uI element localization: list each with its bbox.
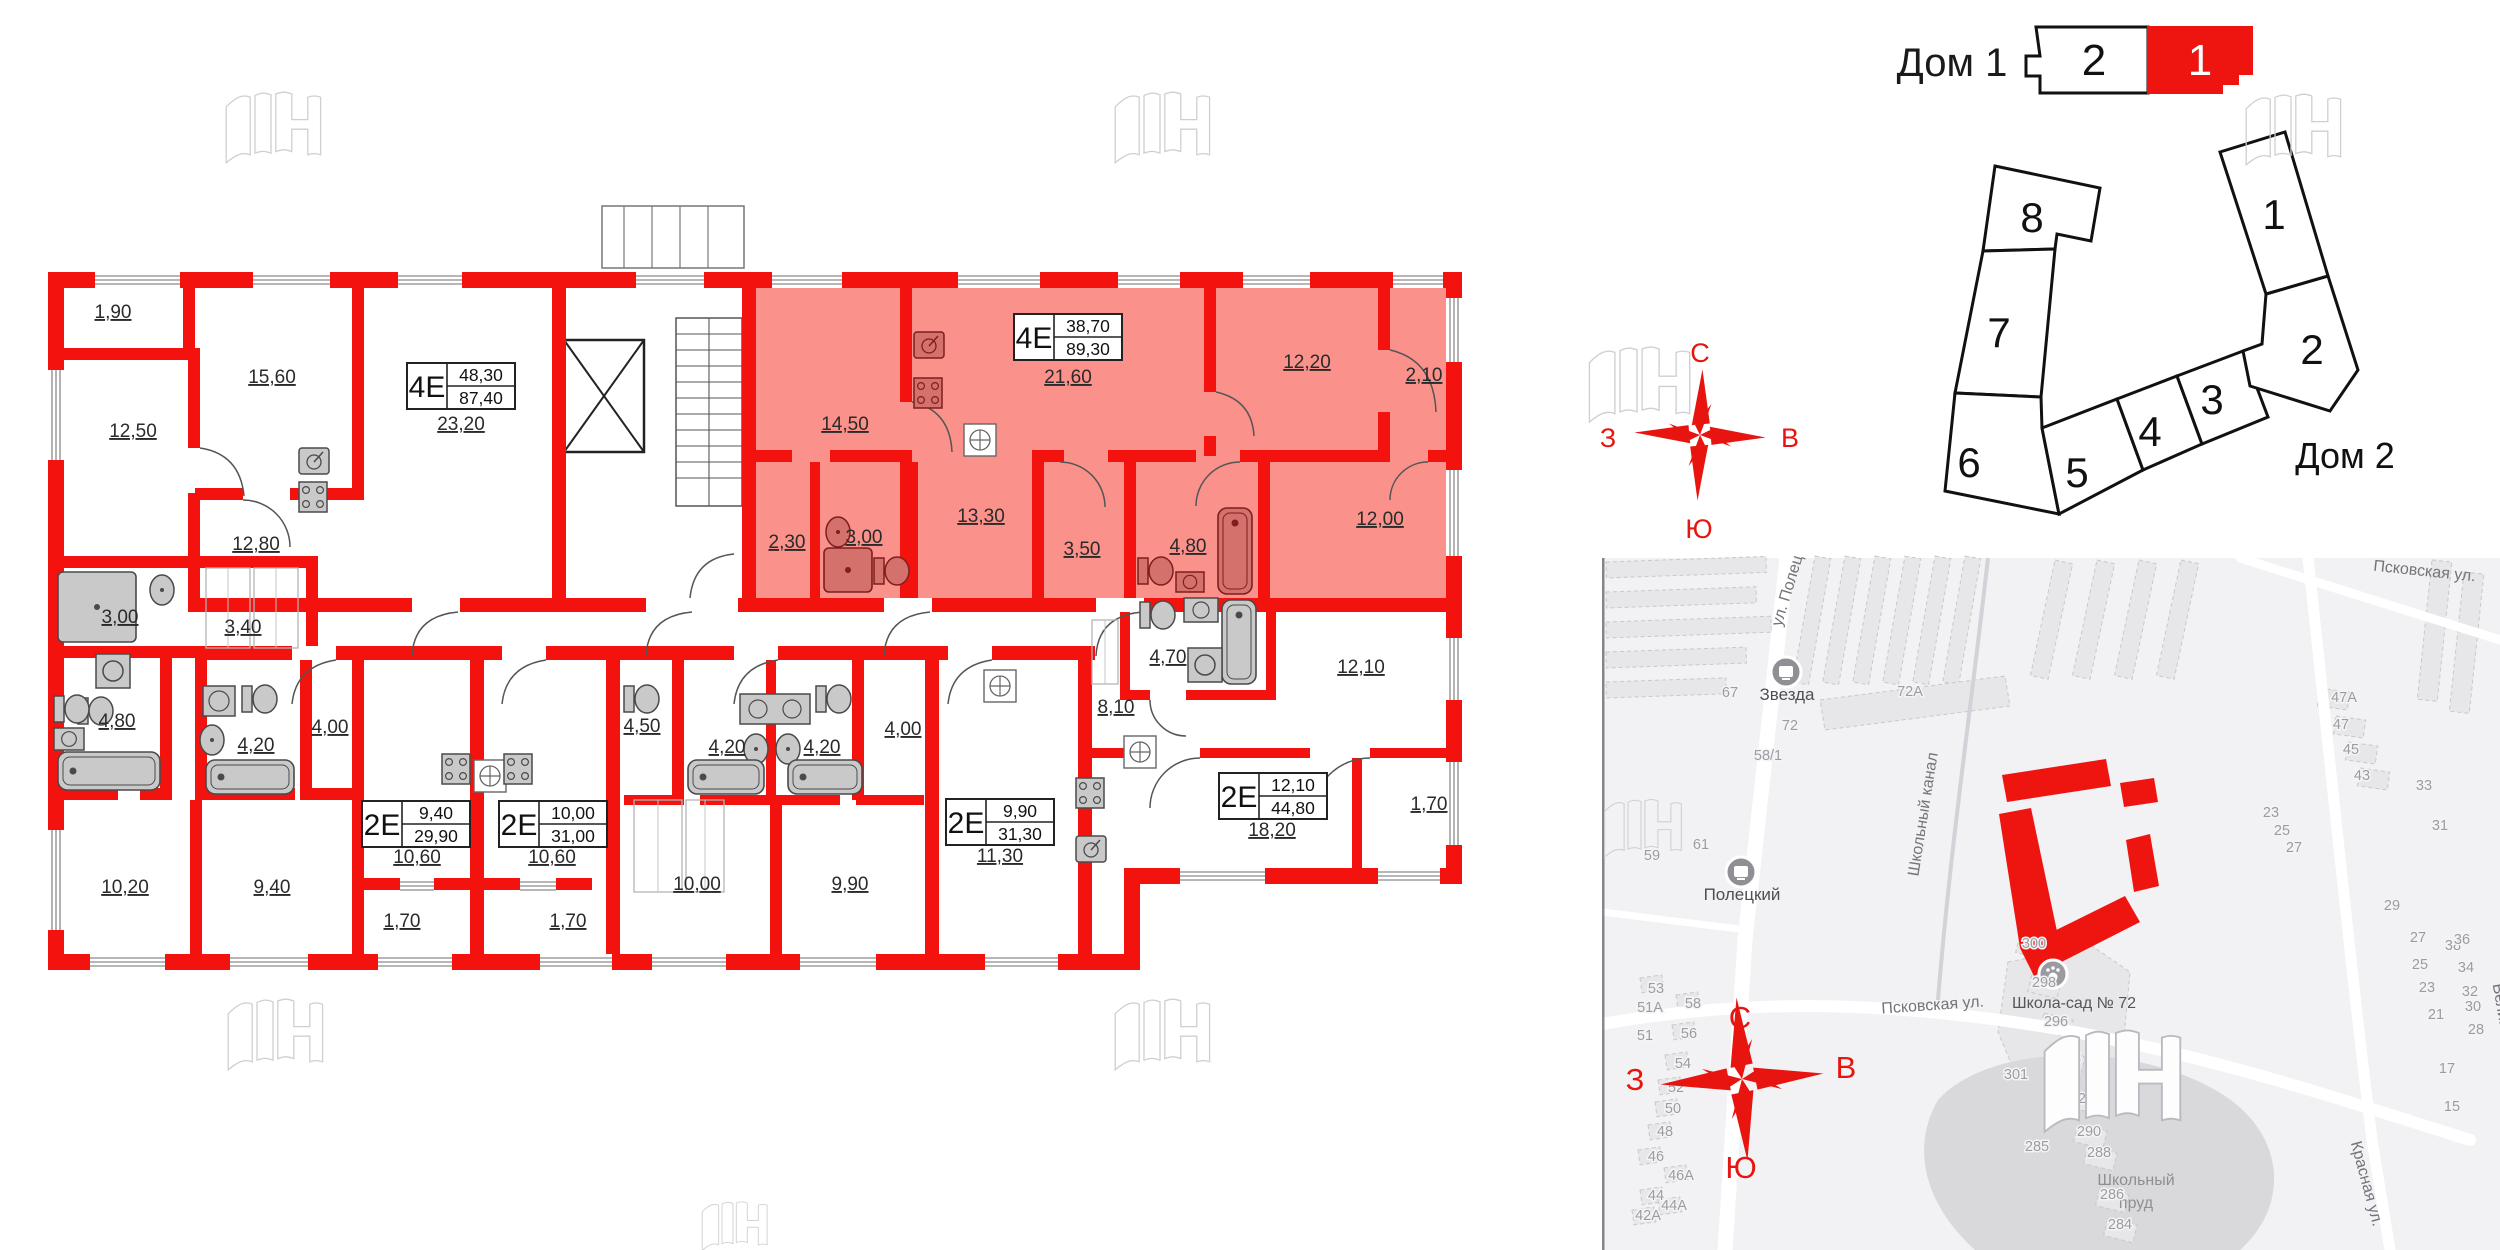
room-area-label: 4,80 — [1170, 536, 1207, 557]
bathtub-drain — [1232, 520, 1239, 527]
transit-stop-label: Звезда — [1760, 685, 1816, 704]
school-icon-glyph — [2051, 966, 2055, 970]
tab-1-label[interactable]: 1 — [2188, 36, 2212, 85]
stove — [504, 754, 532, 784]
apartment-info-box[interactable]: 2Е10,0031,00 — [499, 801, 607, 847]
apartment-total-area: 29,90 — [414, 826, 458, 846]
toilet-bowl — [1151, 601, 1175, 629]
wall — [364, 878, 400, 890]
house-number: 61 — [1693, 837, 1709, 853]
bathtub-drain — [218, 774, 225, 781]
house-number: 53 — [1648, 981, 1664, 997]
wall — [300, 660, 312, 800]
house-number: 290 — [2077, 1124, 2101, 1140]
school-icon-glyph — [2056, 968, 2060, 972]
room-area-label: 18,20 — [1248, 820, 1296, 841]
apartment-total-area: 44,80 — [1271, 798, 1315, 818]
wall — [48, 556, 196, 568]
room-area-label: 3,00 — [102, 607, 139, 628]
room-area-label: 1,70 — [384, 911, 421, 932]
house-number: 31 — [2432, 818, 2448, 834]
wall — [908, 462, 918, 598]
wall — [1120, 610, 1130, 698]
highlighted-building-shape — [2120, 778, 2158, 807]
apartment-total-area: 87,40 — [459, 388, 503, 408]
room-area-label: 13,30 — [957, 506, 1005, 527]
washing-machine — [96, 654, 130, 688]
compass-east: В — [1836, 1050, 1857, 1085]
apartment-info-box[interactable]: 2Е9,4029,90 — [362, 801, 470, 847]
scheme-num-7: 7 — [1987, 309, 2010, 356]
compass-east: В — [1781, 423, 1799, 453]
wall — [434, 878, 470, 890]
wall — [1204, 272, 1216, 392]
bathtub-drain — [800, 774, 807, 781]
scheme-num-4: 4 — [2138, 408, 2161, 455]
house-number: 29 — [2384, 898, 2400, 914]
apartment-living-area: 9,90 — [1003, 801, 1037, 821]
double-sink — [740, 694, 810, 724]
wall — [188, 493, 200, 612]
house-number: 27 — [2286, 840, 2302, 856]
wall — [1428, 450, 1448, 462]
room-area-label: 12,20 — [1283, 352, 1331, 373]
wall — [1044, 450, 1064, 462]
wall — [925, 652, 939, 970]
house-number: 28 — [2468, 1022, 2484, 1038]
room-area-label: 10,60 — [393, 847, 441, 868]
room-area-label: 10,60 — [528, 847, 576, 868]
wall — [1186, 690, 1276, 700]
house-number: 46А — [1668, 1168, 1694, 1184]
wall — [195, 598, 1462, 612]
room-area-label: 12,80 — [232, 534, 280, 555]
room-area-label: 4,70 — [1150, 647, 1187, 668]
apartment-living-area: 12,10 — [1271, 775, 1315, 795]
wall — [1352, 758, 1362, 868]
wall — [672, 660, 684, 800]
house-number: 51А — [1637, 1000, 1663, 1016]
wall — [188, 348, 200, 448]
stove — [299, 482, 327, 512]
house-number: 36 — [2454, 932, 2470, 948]
house-number: 33 — [2416, 778, 2432, 794]
stove — [442, 754, 470, 784]
scheme-num-2: 2 — [2300, 326, 2323, 373]
toilet-tank — [1138, 558, 1148, 584]
room-area-label: 8,10 — [1098, 697, 1135, 718]
apartment-type: 2Е — [948, 807, 985, 840]
apartment-type: 2Е — [1221, 781, 1258, 814]
bathtub-drain — [1236, 612, 1243, 619]
room-area-label: 4,20 — [238, 735, 275, 756]
apartment-info-box[interactable]: 4Е48,3087,40 — [407, 363, 515, 409]
toilet-bowl — [1149, 557, 1173, 585]
room-area-label: 3,00 — [846, 527, 883, 548]
wall — [900, 280, 912, 402]
house-number: 47 — [2333, 717, 2349, 733]
bathtub-drain — [70, 768, 77, 775]
wall — [195, 488, 243, 500]
house-number: 50 — [1665, 1101, 1681, 1117]
house-number: 51 — [1637, 1028, 1653, 1044]
room-area-label: 4,20 — [804, 737, 841, 758]
house-number: 56 — [1681, 1026, 1697, 1042]
house-number: 72А — [1897, 684, 1923, 700]
house-number: 288 — [2087, 1145, 2111, 1161]
toilet-tank — [242, 686, 252, 712]
stove — [1076, 778, 1104, 808]
room-area-label: 9,90 — [832, 874, 869, 895]
door-opening — [690, 598, 738, 612]
wall — [830, 450, 912, 462]
sink-drain — [210, 738, 214, 742]
door-opening — [884, 598, 932, 612]
house-number: 296 — [2044, 1014, 2068, 1030]
room-area-label: 2,30 — [769, 532, 806, 553]
room-area-label: 1,90 — [95, 302, 132, 323]
apartment-living-area: 10,00 — [551, 803, 595, 823]
house-number: 23 — [2263, 805, 2279, 821]
map-label: Школа-сад № 72 — [2012, 995, 2136, 1012]
toilet-bowl — [253, 685, 277, 713]
compass-west: З — [1626, 1062, 1645, 1097]
compass-south: Ю — [1685, 514, 1712, 544]
room-area-label: 9,40 — [254, 877, 291, 898]
apartment-living-area: 9,40 — [419, 803, 453, 823]
house-number: 46 — [1648, 1149, 1664, 1165]
wall — [1378, 272, 1390, 350]
wall — [856, 795, 924, 805]
apartment-type: 4Е — [1016, 322, 1053, 355]
house-number: 42А — [1635, 1208, 1661, 1224]
house-number: 47А — [2331, 690, 2357, 706]
room-area-label: 23,20 — [437, 414, 485, 435]
apartment-total-area: 31,30 — [998, 824, 1042, 844]
wall — [766, 652, 776, 800]
wall — [742, 272, 756, 612]
room-area-label: 10,00 — [673, 874, 721, 895]
room-area-label: 11,30 — [977, 846, 1023, 867]
scheme-num-5: 5 — [2065, 449, 2088, 496]
apartment-type: 2Е — [501, 809, 538, 842]
scheme-num-1: 1 — [2262, 191, 2285, 238]
compass-south: Ю — [1725, 1150, 1756, 1185]
apartment-info-box[interactable]: 2Е9,9031,30 — [946, 799, 1054, 845]
room-area-label: 4,00 — [885, 719, 922, 740]
room-area-label: 12,00 — [1356, 509, 1404, 530]
house-number: 34 — [2458, 960, 2474, 976]
wall — [1032, 450, 1044, 598]
house-number: 300 — [2022, 936, 2046, 952]
room-area-label: 14,50 — [821, 414, 869, 435]
wall — [810, 462, 820, 598]
room-area-label: 12,10 — [1337, 657, 1385, 678]
wall — [606, 652, 620, 970]
apartment-type: 4Е — [409, 371, 446, 404]
house-number: 48 — [1657, 1124, 1673, 1140]
room-area-label: 21,60 — [1044, 367, 1092, 388]
room-area-label: 4,20 — [709, 737, 746, 758]
scheme-num-6: 6 — [1957, 439, 1980, 486]
room-area-label: 3,50 — [1064, 539, 1101, 560]
transit-stop-label: Полецкий — [1704, 885, 1781, 904]
wall — [1124, 868, 1140, 968]
house-number: 23 — [2419, 980, 2435, 996]
room-area-label: 3,40 — [225, 617, 262, 638]
apartment-info-box[interactable]: 4Е38,7089,30 — [1014, 314, 1122, 360]
room-area-label: 15,60 — [248, 367, 296, 388]
toilet-bowl — [885, 557, 909, 585]
bus-glyph — [1734, 866, 1748, 877]
room-area-label: 1,70 — [1411, 794, 1448, 815]
toilet-tank — [1140, 602, 1150, 628]
house-number: 58 — [1685, 996, 1701, 1012]
toilet-tank — [624, 686, 634, 712]
door-opening — [948, 646, 992, 660]
compass-west: З — [1600, 423, 1616, 453]
wall — [1258, 450, 1270, 598]
house-number: 59 — [1644, 848, 1660, 864]
compass-north: С — [1690, 338, 1710, 368]
wall — [306, 556, 318, 648]
sink-drain — [160, 588, 164, 592]
house-number: 43 — [2354, 768, 2370, 784]
house-number: 21 — [2428, 1007, 2444, 1023]
apartment-total-area: 89,30 — [1066, 339, 1110, 359]
wall — [1136, 450, 1196, 462]
sink-drain — [836, 530, 840, 534]
entrance-steps — [602, 206, 744, 268]
map-label: пруд — [2119, 1195, 2154, 1212]
house-number: 284 — [2108, 1217, 2132, 1233]
apartment-info-box[interactable]: 2Е12,1044,80 — [1219, 773, 1327, 819]
house-number: 58/1 — [1754, 748, 1782, 764]
house-number: 285 — [2025, 1139, 2049, 1155]
room-area-label: 4,00 — [312, 717, 349, 738]
house-number: 67 — [1722, 685, 1738, 701]
compass-north: С — [1729, 1000, 1751, 1035]
sink-drain — [754, 747, 758, 751]
toilet-bowl — [827, 685, 851, 713]
wall — [352, 272, 364, 500]
toilet-bowl — [635, 685, 659, 713]
house-title: Дом 1 — [1897, 41, 2008, 85]
house-number: 15 — [2444, 1099, 2460, 1115]
house-number: 27 — [2410, 930, 2426, 946]
wall — [1370, 748, 1462, 758]
floor-plan-page: ЗвездаПолецкий ул. ПолецШкольный каналПс… — [0, 0, 2500, 1250]
room-area-label: 1,70 — [550, 911, 587, 932]
wall — [1124, 450, 1136, 598]
bathtub-drain — [700, 774, 707, 781]
school-icon-glyph — [2046, 968, 2050, 972]
wall — [1200, 748, 1310, 758]
wall — [1266, 610, 1276, 698]
house-number: 301 — [2004, 1067, 2028, 1083]
door-opening — [502, 646, 546, 660]
room-area-label: 10,20 — [101, 877, 149, 898]
wall — [470, 652, 484, 970]
shower-drain — [845, 567, 851, 573]
toilet-tank — [54, 696, 64, 722]
apartment-living-area: 38,70 — [1066, 316, 1110, 336]
wall — [310, 788, 364, 800]
wall — [552, 272, 566, 612]
house-number: 298 — [2032, 975, 2056, 991]
stove — [914, 378, 942, 408]
wall — [1378, 412, 1390, 456]
wall — [195, 556, 318, 568]
house-number: 30 — [2465, 999, 2481, 1015]
wall — [190, 800, 202, 954]
wall — [1270, 450, 1390, 462]
bus-glyph — [1779, 666, 1793, 677]
room-area-label: 4,50 — [624, 716, 661, 737]
washing-machine — [1188, 648, 1222, 682]
door-opening — [734, 646, 778, 660]
wall — [754, 450, 792, 462]
house-number: 32 — [2462, 984, 2478, 1000]
door-opening — [1096, 598, 1144, 612]
room-area-label: 4,80 — [99, 711, 136, 732]
door-opening — [412, 598, 460, 612]
wall — [160, 658, 172, 800]
apartment-living-area: 48,30 — [459, 365, 503, 385]
tab-2-label[interactable]: 2 — [2082, 36, 2106, 85]
door-opening — [646, 598, 694, 612]
room-area-label: 2,10 — [1406, 365, 1443, 386]
wall — [183, 272, 195, 360]
apartment-type: 2Е — [364, 809, 401, 842]
house-number: 45 — [2343, 742, 2359, 758]
toilet-tank — [816, 686, 826, 712]
scheme-num-3: 3 — [2200, 376, 2223, 423]
wall — [1204, 436, 1216, 456]
house-number: 72 — [1782, 718, 1798, 734]
house-number: 25 — [2412, 957, 2428, 973]
scheme-num-8: 8 — [2020, 194, 2043, 241]
toilet-bowl — [65, 695, 89, 723]
house-number: 25 — [2274, 823, 2290, 839]
house2-label: Дом 2 — [2295, 435, 2395, 476]
wall — [556, 878, 592, 890]
house-number: 44А — [1661, 1198, 1687, 1214]
location-map[interactable]: ЗвездаПолецкий ул. ПолецШкольный каналПс… — [1602, 553, 2500, 1250]
sink-drain — [786, 747, 790, 751]
apartment-total-area: 31,00 — [551, 826, 595, 846]
toilet-tank — [874, 558, 884, 584]
wall — [770, 805, 782, 965]
room-area-label: 12,50 — [109, 421, 157, 442]
house-number: 17 — [2439, 1061, 2455, 1077]
wall — [484, 878, 520, 890]
map-frame-edge — [1602, 558, 1605, 1250]
wall — [48, 348, 195, 360]
shower-drain — [94, 604, 100, 610]
house-number: 286 — [2100, 1187, 2124, 1203]
house-number: 54 — [1675, 1056, 1691, 1072]
